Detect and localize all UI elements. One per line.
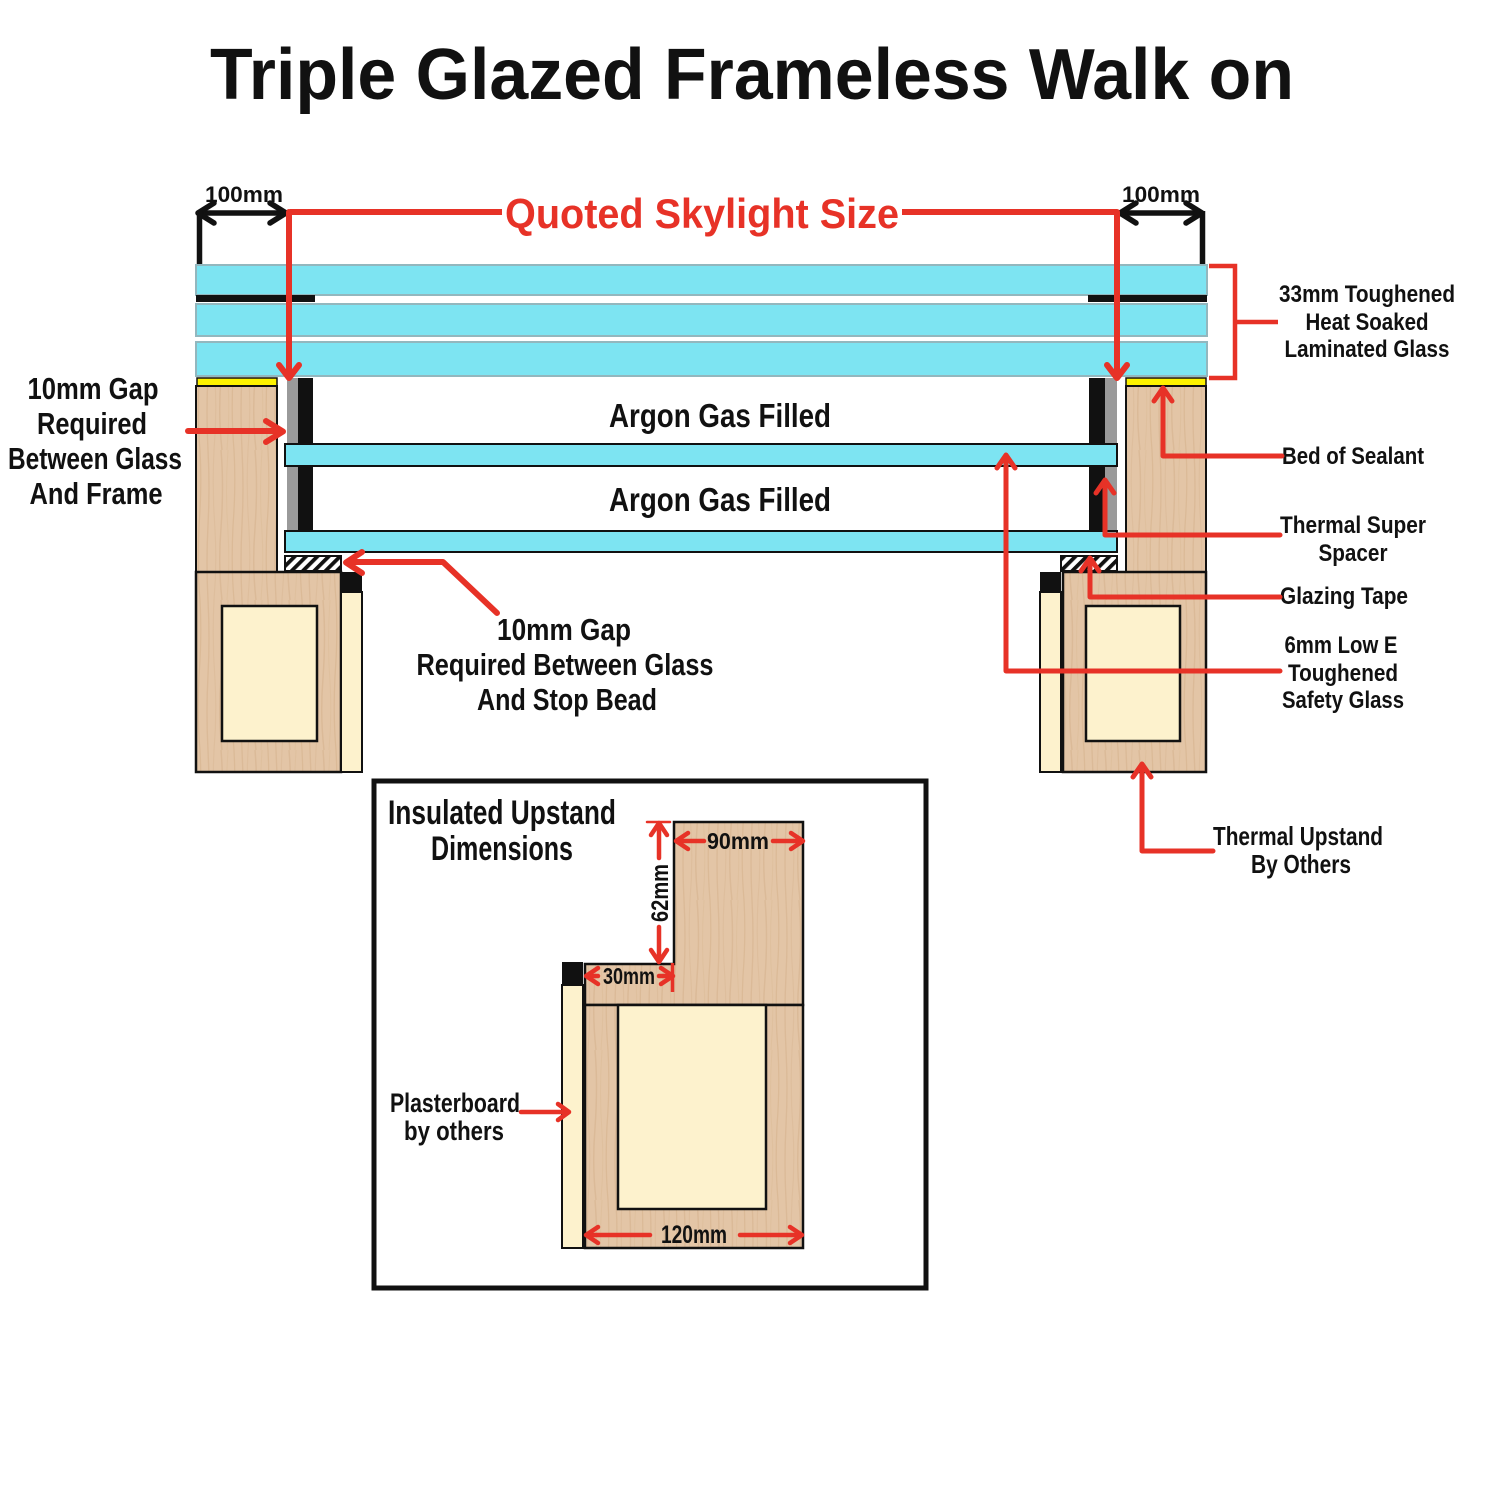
svg-text:90mm: 90mm [707, 828, 769, 854]
svg-text:Triple Glazed Frameless Walk o: Triple Glazed Frameless Walk on [210, 35, 1294, 115]
svg-text:Insulated Upstand: Insulated Upstand [388, 794, 616, 832]
svg-text:Quoted Skylight Size: Quoted Skylight Size [505, 190, 899, 237]
svg-text:Bed of Sealant: Bed of Sealant [1282, 443, 1424, 470]
svg-text:Required Between Glass: Required Between Glass [417, 647, 714, 682]
svg-text:120mm: 120mm [661, 1221, 727, 1249]
svg-text:Argon Gas Filled: Argon Gas Filled [609, 481, 831, 518]
svg-text:Toughened: Toughened [1288, 660, 1398, 687]
svg-text:Plasterboard: Plasterboard [390, 1088, 520, 1118]
svg-text:Laminated Glass: Laminated Glass [1285, 336, 1450, 363]
svg-text:Dimensions: Dimensions [431, 830, 573, 868]
svg-text:6mm Low E: 6mm Low E [1285, 632, 1398, 659]
svg-text:Heat Soaked: Heat Soaked [1306, 309, 1429, 336]
svg-text:And Stop Bead: And Stop Bead [477, 682, 657, 717]
svg-text:10mm Gap: 10mm Gap [28, 371, 159, 406]
svg-text:30mm: 30mm [603, 963, 655, 989]
svg-text:Thermal Upstand: Thermal Upstand [1213, 821, 1383, 851]
svg-text:Safety Glass: Safety Glass [1282, 687, 1404, 714]
svg-text:Glazing Tape: Glazing Tape [1280, 583, 1408, 610]
svg-text:Between Glass: Between Glass [8, 441, 182, 476]
svg-text:Argon Gas Filled: Argon Gas Filled [609, 397, 831, 434]
svg-text:by others: by others [404, 1116, 504, 1146]
svg-text:Spacer: Spacer [1319, 540, 1388, 567]
svg-text:33mm Toughened: 33mm Toughened [1279, 281, 1455, 308]
svg-text:Thermal Super: Thermal Super [1280, 512, 1426, 539]
svg-text:By Others: By Others [1251, 849, 1351, 879]
svg-text:62mm: 62mm [647, 864, 674, 922]
svg-text:And Frame: And Frame [30, 476, 163, 511]
svg-text:10mm Gap: 10mm Gap [497, 612, 631, 647]
svg-text:Required: Required [37, 406, 147, 441]
